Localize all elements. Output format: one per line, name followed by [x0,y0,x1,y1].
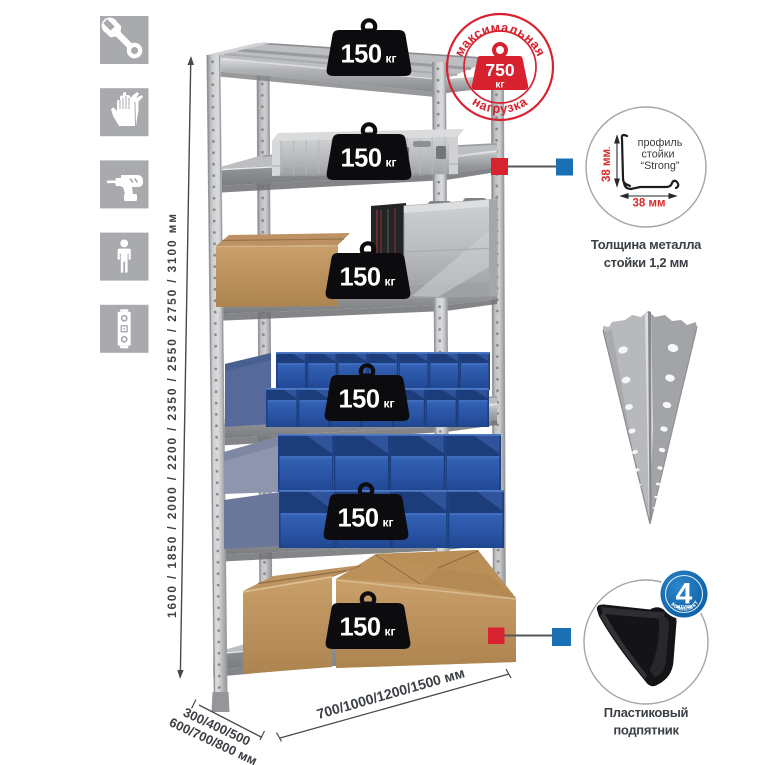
svg-text:“Strong”: “Strong” [640,160,679,172]
svg-text:750: 750 [485,60,514,80]
svg-text:стойки 1,2 мм: стойки 1,2 мм [604,255,689,270]
svg-text:подпятник: подпятник [613,723,679,738]
svg-text:стойки: стойки [641,149,674,161]
svg-text:38 мм.: 38 мм. [601,147,613,182]
svg-text:Пластиковый: Пластиковый [604,705,689,720]
svg-text:кг: кг [495,80,504,91]
svg-text:38 мм: 38 мм [632,198,665,210]
svg-text:1600 / 1850 / 2000 / 2200 / 23: 1600 / 1850 / 2000 / 2200 / 2350 / 2550 … [165,214,179,618]
svg-text:профиль: профиль [638,137,683,149]
svg-text:Толщина металла: Толщина металла [591,237,702,252]
